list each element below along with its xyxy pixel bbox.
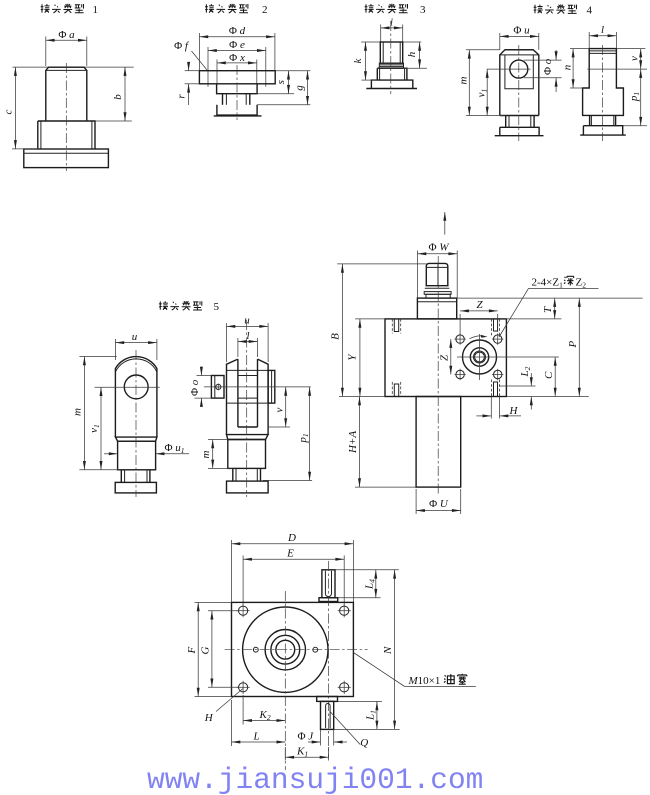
svg-text:Z: Z (439, 354, 451, 361)
svg-text:F: F (186, 647, 198, 655)
svg-text:m: m (200, 450, 212, 458)
svg-text:T: T (542, 306, 554, 313)
svg-text:G: G (200, 647, 212, 655)
svg-text:4: 4 (587, 5, 593, 17)
svg-text:2-4×Z1: 2-4×Z1 (532, 277, 564, 290)
svg-text:D: D (287, 532, 296, 544)
svg-text:M10×1: M10×1 (408, 675, 441, 687)
svg-text:E: E (286, 548, 294, 560)
svg-text:Φ W: Φ W (429, 242, 450, 254)
svg-text:Φ U: Φ U (429, 498, 449, 510)
svg-text:H: H (204, 712, 214, 724)
svg-text:h: h (406, 51, 418, 57)
svg-text:H: H (509, 405, 519, 417)
svg-text:Φ J: Φ J (298, 731, 315, 743)
svg-text:3: 3 (420, 4, 426, 16)
svg-text:u: u (132, 331, 138, 343)
svg-text:N: N (382, 646, 394, 655)
svg-text:2: 2 (262, 4, 268, 16)
svg-text:www.jiansuji001.com: www.jiansuji001.com (147, 763, 483, 795)
svg-text:Φ o: Φ o (542, 58, 554, 75)
svg-text:m: m (458, 76, 470, 84)
svg-text:u: u (244, 315, 250, 327)
svg-text:Φ f: Φ f (174, 40, 190, 52)
svg-text:r: r (176, 94, 188, 99)
svg-text:Φ a: Φ a (58, 29, 75, 41)
svg-text:s: s (275, 80, 287, 84)
svg-text:Φ d: Φ d (229, 25, 246, 37)
svg-text:Q: Q (360, 737, 368, 749)
svg-text:v: v (629, 56, 641, 61)
svg-text:l: l (601, 24, 604, 36)
svg-text:v: v (274, 407, 286, 412)
svg-text:5: 5 (214, 301, 220, 313)
svg-text:H+A: H+A (347, 431, 359, 454)
svg-text:Φ x: Φ x (229, 52, 245, 64)
svg-text:C: C (543, 371, 555, 379)
svg-text:1: 1 (93, 4, 99, 16)
svg-text:B: B (330, 333, 342, 340)
svg-text:Φ e: Φ e (229, 39, 245, 51)
svg-text:c: c (3, 109, 15, 114)
svg-text:i: i (390, 17, 393, 29)
svg-text:n: n (562, 64, 574, 70)
svg-text:P: P (567, 341, 579, 349)
svg-text:b: b (112, 94, 124, 100)
svg-text:g: g (294, 85, 306, 91)
svg-text:Φ u: Φ u (513, 25, 530, 37)
svg-text:Z: Z (476, 299, 483, 311)
svg-text:m: m (72, 408, 84, 416)
svg-text:Φ o: Φ o (189, 379, 201, 396)
svg-text:L: L (253, 731, 260, 743)
